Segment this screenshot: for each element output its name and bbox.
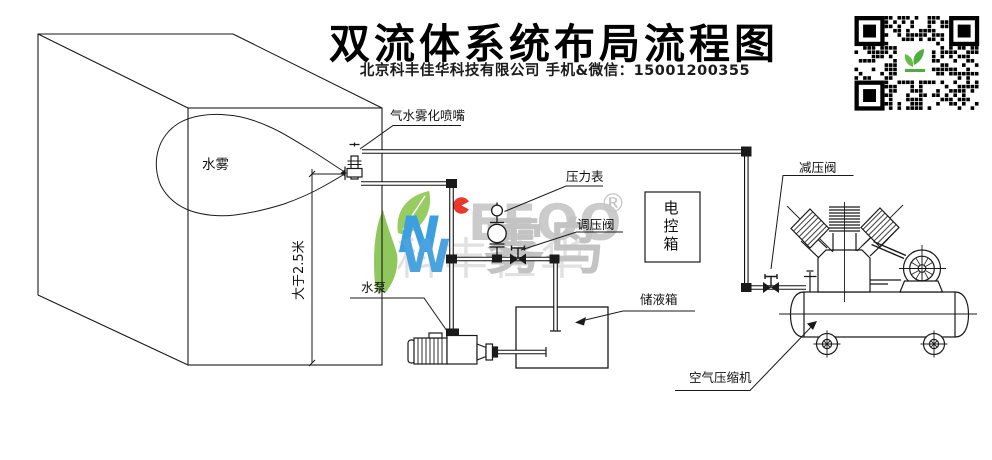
qr-pattern [851, 13, 983, 116]
diagram-canvas: 科丰佳华 EEOO ® 雾鸟 N W [0, 0, 992, 460]
label-liquid-tank: 储液箱 [640, 293, 678, 307]
text-layer: 双流体系统布局流程图 北京科丰佳华科技有限公司 手机&微信：1500120035… [0, 0, 992, 460]
label-min-height: 大于2.5米 [293, 227, 307, 313]
label-water-mist: 水雾 [202, 158, 229, 173]
label-reducing-valve: 减压阀 [799, 161, 837, 175]
label-pressure-gauge: 压力表 [566, 170, 604, 184]
label-water-pump: 水泵 [361, 281, 386, 295]
company-contact-line: 北京科丰佳华科技有限公司 手机&微信：15001200355 [330, 59, 780, 80]
label-air-compressor: 空气压缩机 [689, 371, 752, 385]
label-control-box: 电控箱 [662, 200, 679, 262]
label-regulating-valve: 调压阀 [577, 218, 615, 232]
label-atomizing-nozzle: 气水雾化喷嘴 [390, 109, 465, 123]
wechat-qr-code [851, 13, 983, 116]
